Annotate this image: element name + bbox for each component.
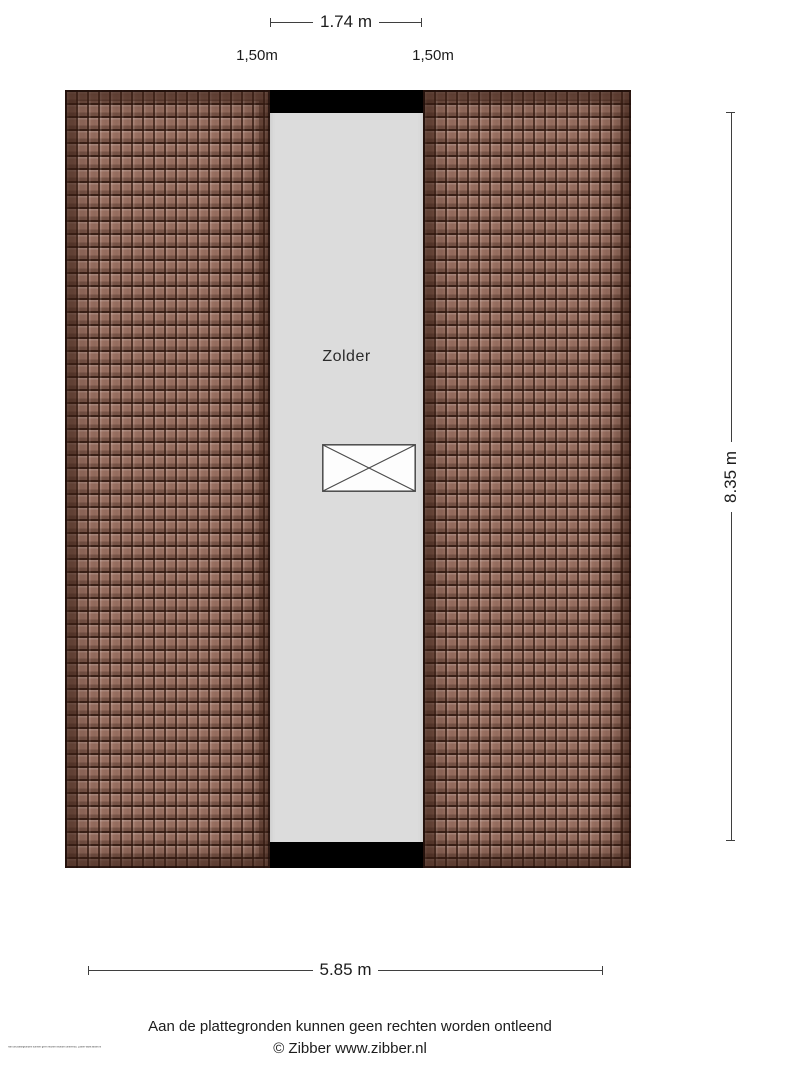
dimension-right-tick-bottom [726,840,735,841]
wall-bottom [270,842,423,868]
dimension-top-tick-right [421,18,422,27]
floorplan-page: 1.74 m 1,50m 1,50m Zolder 8.35 m 5.85 m … [0,0,800,1067]
height-contour-label-left: 1,50m [236,47,278,64]
height-contour-label-right: 1,50m [412,47,454,64]
dimension-bottom: 5.85 m [88,962,603,978]
wall-top [270,90,423,113]
dimension-right-label: 8.35 m [721,442,741,512]
dimension-top: 1.74 m [270,14,422,30]
footer-fine-print: Aan de plattegronden kunnen geen rechten… [8,1046,101,1049]
dimension-bottom-tick-left [88,966,89,975]
dimension-bottom-tick-right [602,966,603,975]
dimension-right: 8.35 m [724,112,737,841]
roof-right [423,90,631,868]
roof-window-symbol [322,444,416,492]
dimension-right-tick-top [726,112,735,113]
dimension-top-tick-left [270,18,271,27]
room-label: Zolder [270,348,423,366]
footer-disclaimer: Aan de plattegronden kunnen geen rechten… [0,1016,700,1038]
footer-copyright: © Zibber www.zibber.nl [0,1038,700,1060]
floorplan: Zolder [65,90,631,868]
roof-left [65,90,270,868]
dimension-bottom-label: 5.85 m [313,960,379,980]
dimension-top-label: 1.74 m [313,12,379,32]
footer: Aan de plattegronden kunnen geen rechten… [0,1016,700,1060]
